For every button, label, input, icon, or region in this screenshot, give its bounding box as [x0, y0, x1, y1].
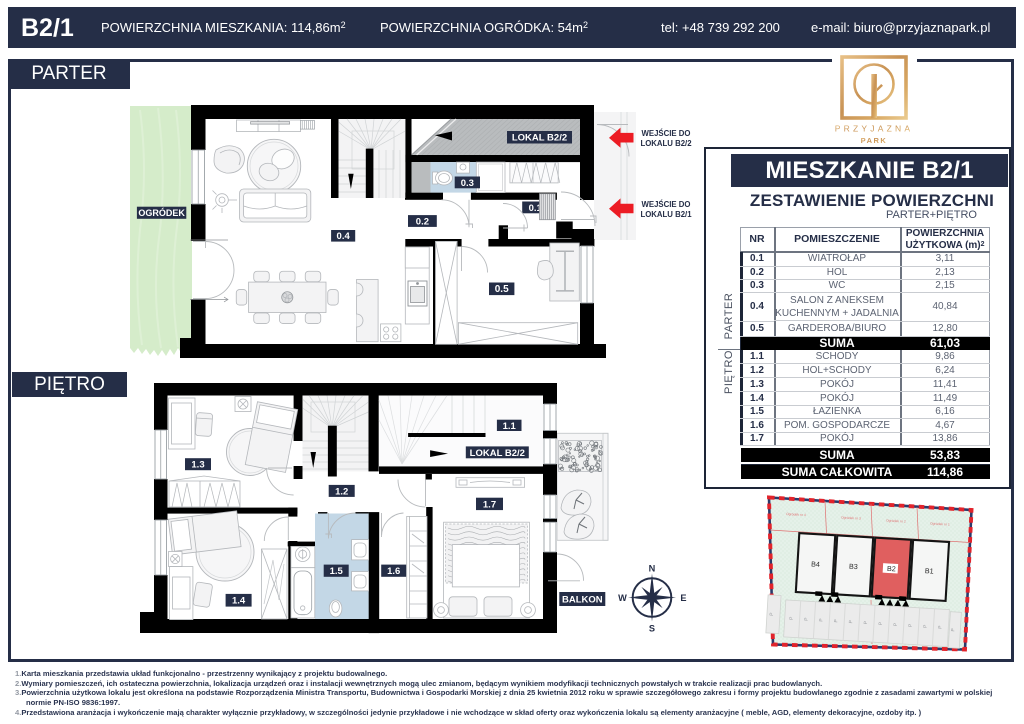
svg-text:B2: B2	[887, 564, 896, 574]
svg-text:0.3: 0.3	[461, 178, 474, 189]
svg-text:0.4: 0.4	[337, 231, 351, 242]
svg-text:B1: B1	[925, 566, 934, 576]
svg-text:1.2: 1.2	[335, 486, 348, 497]
svg-text:P: P	[878, 622, 884, 626]
svg-text:1.6: 1.6	[387, 566, 400, 577]
svg-text:0.5: 0.5	[495, 284, 509, 295]
svg-text:W: W	[618, 593, 627, 603]
svg-text:LOKALU B2/1: LOKALU B2/1	[640, 210, 692, 219]
svg-text:E: E	[680, 593, 686, 603]
svg-text:1.1: 1.1	[503, 421, 517, 432]
svg-text:WEJŚCIE DO: WEJŚCIE DO	[642, 200, 691, 209]
svg-text:P: P	[893, 623, 899, 627]
svg-text:LOKAL B2/2: LOKAL B2/2	[512, 133, 567, 144]
svg-text:S: S	[649, 624, 655, 634]
svg-text:LOKAL B2/2: LOKAL B2/2	[470, 448, 525, 459]
svg-text:P: P	[950, 628, 956, 632]
svg-text:P: P	[848, 620, 854, 624]
svg-text:1.3: 1.3	[191, 460, 204, 471]
svg-text:PARK: PARK	[861, 136, 888, 145]
svg-text:BALKON: BALKON	[562, 594, 603, 605]
svg-text:0.2: 0.2	[416, 216, 429, 227]
svg-text:P: P	[833, 619, 839, 623]
svg-text:B3: B3	[849, 562, 858, 572]
svg-text:P: P	[863, 621, 869, 625]
svg-text:LOKALU B2/2: LOKALU B2/2	[640, 139, 692, 148]
svg-text:P: P	[908, 624, 914, 628]
svg-text:P: P	[804, 617, 810, 621]
svg-text:P: P	[923, 625, 929, 629]
svg-text:P: P	[937, 625, 943, 629]
svg-text:1.5: 1.5	[330, 566, 344, 577]
svg-text:1.4: 1.4	[232, 596, 246, 607]
svg-text:P: P	[789, 617, 795, 621]
svg-text:P: P	[818, 618, 824, 622]
svg-text:1.7: 1.7	[483, 499, 496, 510]
svg-text:WEJŚCIE DO: WEJŚCIE DO	[642, 129, 691, 138]
svg-text:N: N	[649, 564, 656, 574]
svg-text:P: P	[769, 612, 775, 616]
svg-text:B4: B4	[811, 559, 820, 569]
svg-text:OGRÓDEK: OGRÓDEK	[138, 207, 185, 218]
svg-text:PRZYJAZNA: PRZYJAZNA	[835, 124, 913, 134]
